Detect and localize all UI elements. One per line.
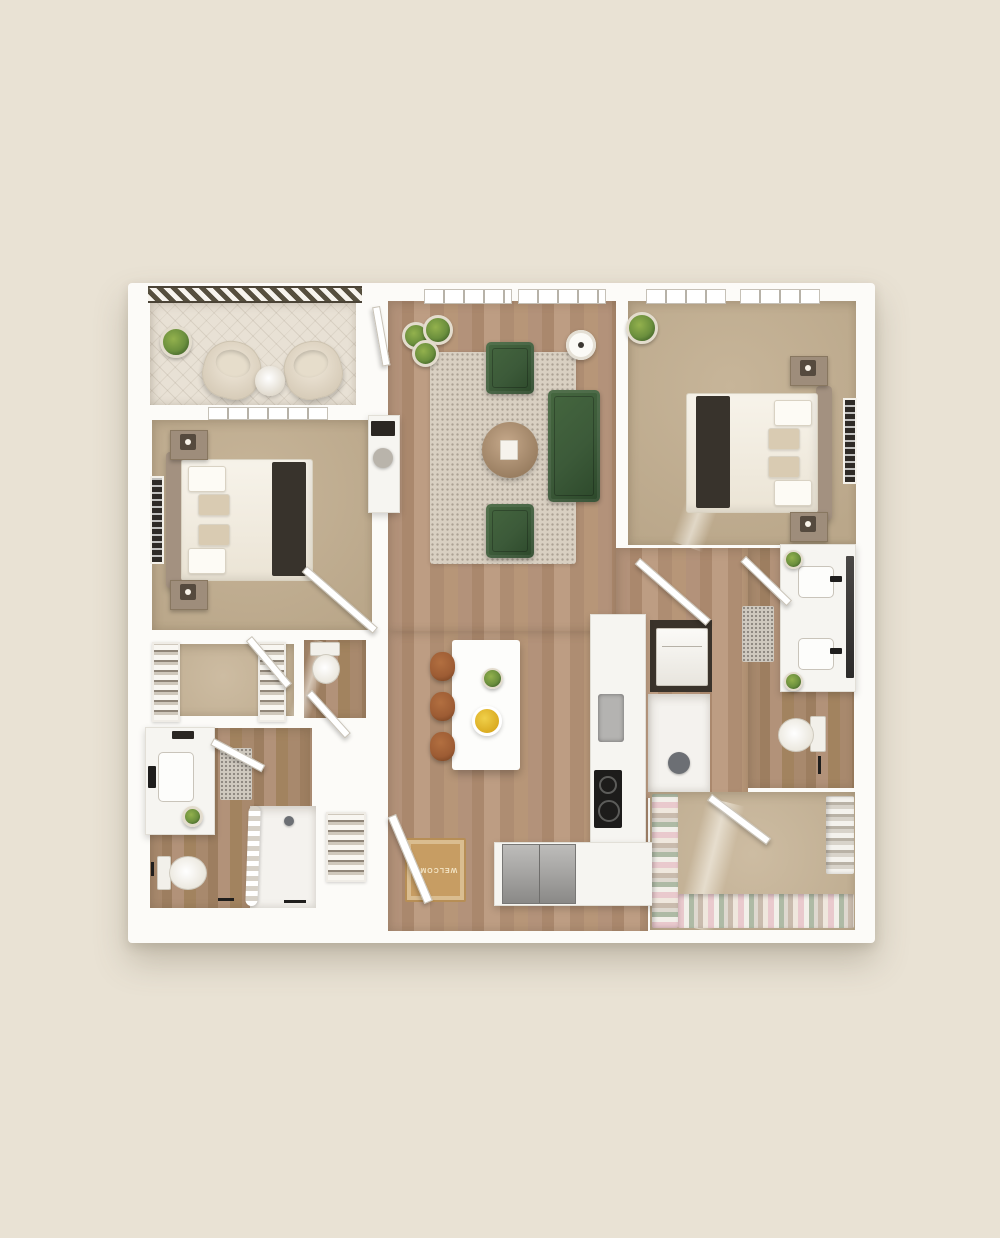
bed-throw: [696, 396, 730, 508]
bar-stool: [430, 732, 455, 761]
bathroom-2-mirror: [846, 556, 854, 678]
bathroom-2-sink: [798, 566, 834, 598]
bathroom-1-toilet-bowl: [169, 856, 207, 890]
vanity-plant: [182, 806, 203, 827]
table-lamp: [180, 434, 196, 450]
pillow: [188, 466, 226, 492]
pillow: [198, 494, 230, 516]
bathroom-2-toilet-bowl: [778, 718, 814, 752]
vanity-plant: [784, 672, 803, 691]
pillow: [774, 400, 812, 426]
cooktop: [594, 770, 622, 828]
burner: [598, 800, 620, 822]
linen-shelves: [326, 812, 366, 882]
bathroom-2-faucet: [830, 576, 842, 582]
wall-art: [150, 476, 164, 564]
towel-bar: [218, 898, 234, 901]
balcony-plant: [160, 326, 192, 358]
closet-2-rail-bottom: [678, 894, 854, 928]
floor-plan: WELCOME: [0, 0, 1000, 1238]
bathroom-2-bath-mat: [742, 606, 774, 662]
magazine: [500, 440, 518, 460]
balcony-side-table: [255, 366, 285, 396]
bedroom-1-bed-frame: [166, 452, 182, 588]
living-plant: [412, 340, 439, 367]
towel-bar: [818, 756, 821, 774]
bedroom-2-window: [646, 289, 726, 304]
bathroom-2-sink: [798, 638, 834, 670]
rain-shower-head: [668, 752, 690, 774]
desk-monitor: [371, 421, 395, 436]
vanity-tray: [172, 731, 194, 739]
table-lamp: [180, 584, 196, 600]
bathroom-1-faucet: [148, 766, 156, 788]
living-window: [518, 289, 606, 304]
closet-2-rail-right: [826, 796, 854, 874]
pillow: [768, 428, 800, 450]
table-lamp: [800, 516, 816, 532]
bedroom-1-window: [208, 407, 328, 420]
bar-stool: [430, 652, 455, 681]
pillow: [198, 524, 230, 546]
refrigerator: [502, 844, 576, 904]
bed-throw: [272, 462, 306, 576]
lemon-bowl: [472, 706, 502, 736]
island-plant: [482, 668, 503, 689]
bedroom-2-bed-frame: [816, 386, 832, 520]
closet-1-shelving: [152, 642, 180, 722]
bathroom-1-sink: [158, 752, 194, 802]
powder-toilet-bowl: [312, 654, 340, 684]
closet-2-rail-left: [652, 794, 678, 928]
table-lamp: [800, 360, 816, 376]
bar-stool: [430, 692, 455, 721]
shower-2-floor: [648, 694, 710, 792]
kitchen-sink: [598, 694, 624, 742]
floor-lamp: [566, 330, 596, 360]
vanity-plant: [784, 550, 803, 569]
armchair: [486, 504, 534, 558]
sofa: [548, 390, 600, 502]
bedroom-2-window: [740, 289, 820, 304]
kitchen-island: [452, 640, 520, 770]
bathroom-2-faucet: [830, 648, 842, 654]
balcony-railing: [148, 286, 362, 303]
wall-art: [843, 398, 857, 484]
burner: [599, 776, 617, 794]
toilet-paper-holder: [151, 862, 154, 876]
stacked-washer-dryer: [656, 628, 708, 686]
living-window: [424, 289, 512, 304]
pillow: [768, 456, 800, 478]
shower-head: [284, 816, 294, 826]
towel-bar: [284, 900, 306, 903]
pillow: [774, 480, 812, 506]
bedroom-2-plant: [626, 312, 658, 344]
pillow: [188, 548, 226, 574]
armchair: [486, 342, 534, 394]
desk-chair: [373, 448, 393, 468]
